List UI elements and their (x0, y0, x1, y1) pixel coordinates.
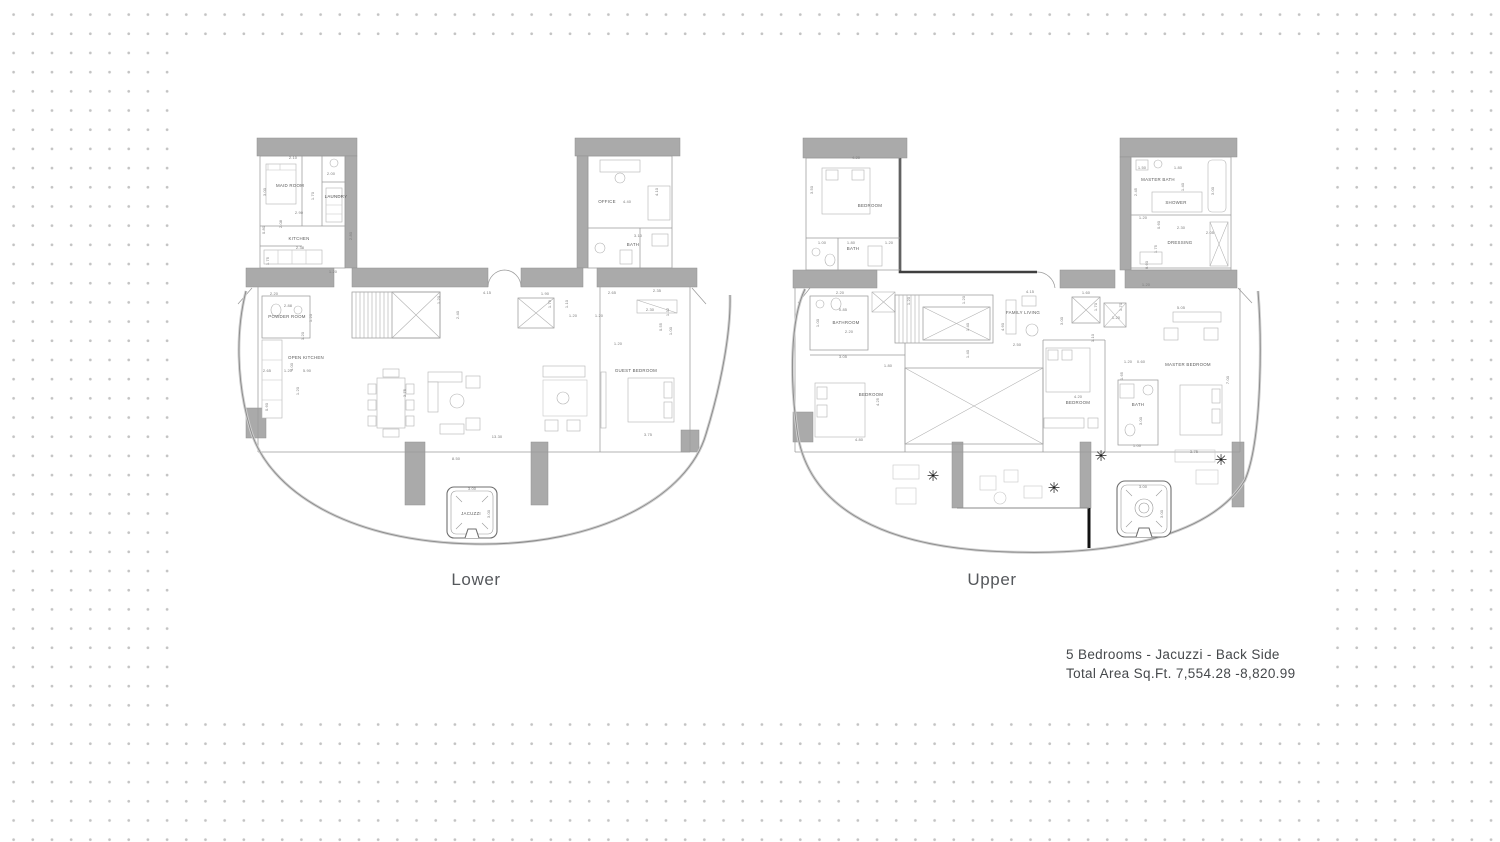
dimension-label: 1.60 (1082, 290, 1091, 295)
dimension-label: 0.55 (658, 322, 663, 331)
dimension-label: 0.60 (1144, 260, 1149, 269)
dimension-label: 2.35 (653, 288, 662, 293)
dimension-label: 13.30 (492, 434, 503, 439)
dimension-label: 1.80 (847, 240, 856, 245)
dimension-label: 1.00 (668, 326, 673, 335)
plant-icon: ✳ (1048, 480, 1061, 497)
dimension-label: 1.20 (1139, 215, 1148, 220)
dimension-label: 1.90 (541, 291, 550, 296)
room-label: BATHROOM (832, 320, 859, 325)
plant-icon: ✳ (927, 468, 940, 485)
dimension-label: 0.85 (839, 307, 848, 312)
dimension-label: 2.90 (295, 210, 304, 215)
dimension-label: 1.20 (436, 295, 441, 304)
dimension-label: 2.65 (608, 290, 617, 295)
dimension-label: 2.20 (845, 329, 854, 334)
sofa-group-1 (428, 372, 480, 434)
dimension-label: 1.20 (295, 386, 300, 395)
dimension-label: 2.20 (836, 290, 845, 295)
room-label: BATH (847, 246, 859, 251)
dimension-label: 1.79 (547, 299, 552, 308)
dimension-label: 1.00 (815, 318, 820, 327)
upper-floor-plan: 4.203.501.001.801.201.501.802.451.403.00… (792, 138, 1260, 552)
dimension-label: 2.40 (455, 310, 460, 319)
dimension-label: 2.00 (327, 171, 336, 176)
dimension-label: 1.20 (1142, 282, 1151, 287)
dimension-label: 1.00 (1133, 443, 1142, 448)
corridor-dark-wall (900, 158, 1037, 272)
dimension-label: 3.00 (486, 509, 491, 518)
entrance-double-door-lower (488, 270, 521, 287)
dimension-label: 4.25 (875, 397, 880, 406)
room-label: KITCHEN (288, 236, 309, 241)
dimension-label: 8.50 (452, 456, 461, 461)
dimension-label: 3.00 (1210, 186, 1215, 195)
plant-icon: ✳ (1215, 452, 1228, 469)
dimension-label: 1.75 (1153, 244, 1158, 253)
corridor-door (1037, 272, 1055, 288)
dimension-label: 1.40 (1180, 182, 1185, 191)
room-label: JACUZZI (461, 511, 481, 516)
room-label: BEDROOM (858, 203, 883, 208)
dimension-label: 3.50 (809, 185, 814, 194)
dining-table (368, 369, 414, 437)
dimension-label: 3.00 (1139, 484, 1148, 489)
room-label: MASTER BATH (1141, 177, 1175, 182)
dimension-label: 1.40 (965, 322, 970, 331)
room-label: FAMILY LIVING (1006, 310, 1040, 315)
dimension-label: 1.80 (1174, 165, 1183, 170)
dimension-label: 1.20 (284, 368, 293, 373)
dimension-label: 2.10 (289, 155, 298, 160)
jacuzzi-upper (1117, 481, 1171, 537)
plants: ✳✳✳✳ (927, 448, 1228, 497)
caption-line-2: Total Area Sq.Ft. 7,554.28 -8,820.99 (1066, 664, 1296, 683)
dimension-label: 3.75 (402, 388, 407, 397)
dimension-label: 0.60 (1156, 220, 1161, 229)
dimension-label: 1.32 (665, 307, 670, 316)
dimension-label: 1.20 (885, 240, 894, 245)
plant-icon: ✳ (1095, 448, 1108, 465)
room-label: MAID ROOM (276, 183, 304, 188)
dimension-label: 2.30 (646, 307, 655, 312)
dimension-label: 3.75 (644, 432, 653, 437)
upper-left-wing (806, 158, 900, 270)
dimension-label: 1.70 (1093, 302, 1098, 311)
dimension-label: 2.88 (284, 303, 293, 308)
dimension-label: 4.15 (483, 290, 492, 295)
room-label: BEDROOM (859, 392, 884, 397)
dimension-label: 4.10 (654, 187, 659, 196)
dimension-label: 1.20 (1112, 315, 1121, 320)
dimension-label: 1.70 (310, 191, 315, 200)
dimension-label: 3.00 (1059, 316, 1064, 325)
dimension-label: 3.75 (1190, 449, 1199, 454)
dimension-label: 1.80 (884, 363, 893, 368)
dimension-label: 3.05 (839, 354, 848, 359)
upper-plan-title: Upper (932, 570, 1052, 590)
dimension-label: 1.20 (329, 269, 338, 274)
dimension-label: 1.10 (1090, 333, 1095, 342)
dimension-label: 1.70 (1118, 302, 1123, 311)
dimension-label: 1.75 (265, 256, 270, 265)
dimension-label: 1.00 (818, 240, 827, 245)
dimension-label: 1.40 (965, 349, 970, 358)
room-label: DRESSING (1168, 240, 1193, 245)
dimension-label: 3.00 (1159, 509, 1164, 518)
upper-left-bedroom (810, 343, 905, 452)
lower-floor-plan: 2.102.003.001.702.900.802.081.752.382.80… (238, 138, 730, 544)
dimension-label: 4.20 (1074, 394, 1083, 399)
dimension-label: 2.80 (348, 231, 353, 240)
dimension-label: 1.65 (1119, 371, 1124, 380)
dimension-label: 2.65 (263, 368, 272, 373)
room-label: OPEN KITCHEN (288, 355, 324, 360)
upper-right-wing (1131, 157, 1231, 270)
dimension-label: 2.30 (1177, 225, 1186, 230)
room-label: OFFICE (598, 199, 616, 204)
dimension-label: 7.00 (1225, 375, 1230, 384)
room-label: POWDER ROOM (268, 314, 305, 319)
dimension-label: 0.60 (264, 402, 269, 411)
dimension-label: 1.20 (906, 296, 911, 305)
dimension-label: 3.00 (1138, 416, 1143, 425)
floorplan-page: { "plan_labels": { "lower": "Lower", "up… (0, 0, 1500, 842)
dimension-label: 3.00 (468, 486, 477, 491)
dimension-label: 2.38 (296, 245, 305, 250)
dimension-label: 1.50 (1138, 165, 1147, 170)
room-label: SHOWER (1165, 200, 1186, 205)
sofa-group-2 (543, 366, 587, 431)
room-label: MASTER BEDROOM (1165, 362, 1211, 367)
dimension-label: 1.20 (614, 341, 623, 346)
dimension-label: 5.05 (1177, 305, 1186, 310)
floorplans-drawing: 2.102.003.001.702.900.802.081.752.382.80… (0, 0, 1500, 842)
dimension-label: 5.90 (303, 368, 312, 373)
dimension-label: 1.20 (308, 313, 313, 322)
dimension-label: 4.60 (1000, 322, 1005, 331)
room-label: GUEST BEDROOM (615, 368, 657, 373)
dimension-label: 2.05 (1206, 230, 1215, 235)
dimension-label: 2.45 (1133, 187, 1138, 196)
family-living-furniture (1006, 296, 1038, 336)
dimension-label: 1.20 (1124, 359, 1133, 364)
dimension-label: 4.40 (623, 199, 632, 204)
lower-dims: 2.102.003.001.702.900.802.081.752.382.80… (261, 155, 673, 518)
lower-plan-title: Lower (416, 570, 536, 590)
dimension-label: 1.20 (595, 313, 604, 318)
room-label: BATH (1132, 402, 1144, 407)
room-label: LAUNDRY (325, 194, 348, 199)
dimension-label: 4.80 (855, 437, 864, 442)
dimension-label: 1.20 (300, 331, 305, 340)
dimension-label: 3.00 (262, 187, 267, 196)
master-bedroom (1164, 312, 1222, 435)
room-label: BATH (627, 242, 639, 247)
dimension-label: 3.10 (634, 233, 643, 238)
dimension-label: 2.50 (1013, 342, 1022, 347)
dimension-label: 1.10 (564, 299, 569, 308)
room-label: BEDROOM (1066, 400, 1091, 405)
dimension-label: 2.20 (270, 291, 279, 296)
dimension-label: 0.60 (1137, 359, 1146, 364)
dimension-label: 4.20 (852, 155, 861, 160)
dimension-label: 2.08 (278, 219, 283, 228)
dimension-label: 1.20 (961, 295, 966, 304)
upper-center-bath (1118, 380, 1158, 445)
plan-caption: 5 Bedrooms - Jacuzzi - Back Side Total A… (1066, 645, 1296, 683)
lower-rooms: MAID ROOMLAUNDRYKITCHENOFFICEBATHPOWDER … (268, 183, 657, 516)
caption-line-1: 5 Bedrooms - Jacuzzi - Back Side (1066, 645, 1296, 664)
lower-right-wing (588, 156, 672, 268)
dimension-label: 0.80 (261, 225, 266, 234)
dimension-label: 1.20 (569, 313, 578, 318)
dimension-label: 4.15 (1026, 289, 1035, 294)
